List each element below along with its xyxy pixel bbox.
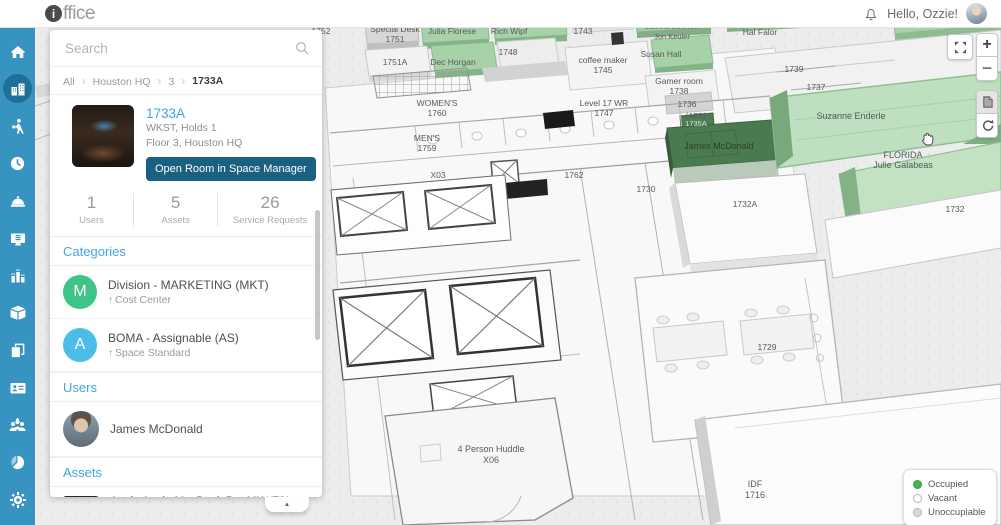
package-cube-icon (9, 304, 27, 322)
sidebar-item-packages[interactable] (0, 295, 35, 332)
sidebar-item-reports[interactable] (0, 444, 35, 481)
sidebar-item-copy-print[interactable] (0, 332, 35, 369)
monitor-icon (9, 230, 27, 248)
vacant-dot-icon (913, 494, 922, 503)
logo-i-circle: i (45, 5, 62, 22)
category-initial-icon: A (63, 328, 97, 362)
category-initial-icon: M (63, 275, 97, 309)
stat-service-requests: 26 Service Requests (217, 193, 322, 226)
legend-occupied[interactable]: Occupied (913, 477, 987, 491)
open-room-button[interactable]: Open Room in Space Manager (146, 157, 316, 181)
stat-users: 1 Users (50, 193, 133, 226)
hierarchy-up-icon: ↑ (108, 295, 113, 306)
stat-assets: 5 Assets (133, 193, 217, 226)
map-label: 1762 (565, 170, 584, 180)
people-group-icon (8, 417, 27, 434)
map-label: coffee maker1745 (579, 55, 628, 75)
copy-pages-icon (9, 342, 26, 359)
user-avatar[interactable] (966, 3, 987, 24)
category-item-marketing[interactable]: M Division - MARKETING (MKT) ↑Cost Cente… (50, 266, 322, 319)
zoom-in-button[interactable]: + (976, 33, 998, 57)
sidebar-item-visitors[interactable] (0, 108, 35, 145)
occupancy-legend: Occupied Vacant Unoccupiable (903, 469, 997, 525)
category-item-boma[interactable]: A BOMA - Assignable (AS) ↑Space Standard (50, 319, 322, 372)
room-detail-panel: All Houston HQ 3 1733A 1733A WKST, Holds… (50, 30, 322, 497)
legend-vacant[interactable]: Vacant (913, 491, 987, 505)
section-categories[interactable]: Categories (50, 236, 322, 266)
asset-photo (63, 496, 99, 497)
service-bell-icon (9, 192, 27, 210)
rotate-button[interactable] (976, 114, 998, 138)
sidebar-item-utilization[interactable] (0, 257, 35, 294)
map-label: 1732 (946, 204, 965, 214)
user-photo (63, 411, 99, 447)
breadcrumb-floor-3[interactable]: 3 (168, 74, 192, 88)
occupied-dot-icon (913, 480, 922, 489)
search-bar[interactable] (50, 30, 322, 67)
room-photo (72, 105, 134, 167)
search-icon (295, 41, 309, 55)
map-label: Suzanne Enderle (816, 111, 885, 121)
section-assets[interactable]: Assets (50, 457, 322, 487)
map-label: 1737 (807, 82, 826, 92)
notification-bell-icon[interactable] (863, 6, 879, 22)
rotate-icon (981, 119, 994, 132)
panel-scrollbar[interactable] (315, 210, 320, 340)
sidebar-item-it-assets[interactable] (0, 220, 35, 257)
clock-icon (9, 155, 26, 172)
sidebar-item-home[interactable] (0, 33, 35, 70)
breadcrumb-houston-hq[interactable]: Houston HQ (93, 74, 169, 88)
fullscreen-icon (954, 41, 967, 54)
breadcrumb-room: 1733A (192, 75, 223, 87)
main-nav-sidebar (0, 28, 35, 525)
map-label: WOMEN'S1760 (417, 98, 458, 118)
map-label: 1751A (383, 57, 408, 67)
map-label: Susan Hall (640, 49, 681, 59)
breadcrumb-all[interactable]: All (63, 74, 93, 88)
unoccupiable-dot-icon (913, 508, 922, 517)
section-users[interactable]: Users (50, 372, 322, 402)
map-label: Hal Falor (743, 27, 777, 37)
map-label: IDF1716 (745, 479, 765, 501)
map-label: MEN'S1759 (414, 133, 440, 153)
map-label: Level 17 WR1747 (580, 98, 629, 118)
map-label: 1739 (785, 64, 804, 74)
map-label: 1732A (733, 199, 758, 209)
chart-bars-icon (9, 267, 27, 285)
gear-icon (9, 491, 27, 509)
room-stats: 1 Users 5 Assets 26 Service Requests (50, 189, 322, 236)
top-header: i ffice Hello, Ozzie! (0, 0, 1001, 28)
room-type: WKST, Holds 1 (146, 121, 309, 136)
ioffice-logo: i ffice (45, 3, 95, 25)
map-label: 1736 (678, 99, 697, 109)
map-label-selected-room: James McDonald (684, 141, 754, 151)
pie-chart-icon (9, 454, 26, 471)
fullscreen-button[interactable] (947, 34, 973, 60)
user-item-james-mcdonald[interactable]: James McDonald (50, 402, 322, 457)
panel-collapse-button[interactable]: ▲ (265, 497, 309, 512)
room-location: Floor 3, Houston HQ (146, 136, 309, 151)
walking-person-icon (9, 118, 26, 135)
map-label: 4 Person HuddleX06 (457, 444, 524, 466)
hierarchy-up-icon: ↑ (108, 348, 113, 359)
sidebar-item-reservations[interactable] (0, 145, 35, 182)
sidebar-item-space[interactable] (0, 70, 35, 107)
map-label: (AED)1735A (685, 112, 707, 128)
sidebar-item-directory[interactable] (0, 407, 35, 444)
home-icon (9, 43, 27, 61)
legend-unoccupiable[interactable]: Unoccupiable (913, 505, 987, 519)
user-greeting[interactable]: Hello, Ozzie! (887, 7, 958, 21)
map-label: 1730 (637, 184, 656, 194)
sidebar-item-settings[interactable] (0, 482, 35, 519)
map-label: 1748 (499, 47, 518, 57)
map-label: FLORIDAJulie Galabeas (873, 150, 933, 170)
breadcrumb: All Houston HQ 3 1733A (50, 67, 322, 95)
search-input[interactable] (63, 40, 295, 57)
document-view-icon (981, 95, 994, 109)
map-label: 1729 (758, 342, 777, 352)
sidebar-item-service-requests[interactable] (0, 183, 35, 220)
map-label: X03 (430, 170, 445, 180)
map-label: Gamer room1738 (655, 76, 703, 96)
view-mode-button[interactable] (976, 90, 998, 114)
sidebar-item-badges[interactable] (0, 370, 35, 407)
asset-item-macbook[interactable]: Apple Apple MacBook Pro MLW72LL/A 15.4-.… (50, 487, 322, 497)
room-card: 1733A WKST, Holds 1 Floor 3, Houston HQ … (50, 95, 322, 189)
id-badge-icon (9, 379, 27, 397)
map-label: Dec Horgan (430, 57, 475, 67)
buildings-icon (9, 80, 27, 98)
zoom-out-button[interactable]: − (976, 57, 998, 81)
room-name-link[interactable]: 1733A (146, 106, 309, 121)
